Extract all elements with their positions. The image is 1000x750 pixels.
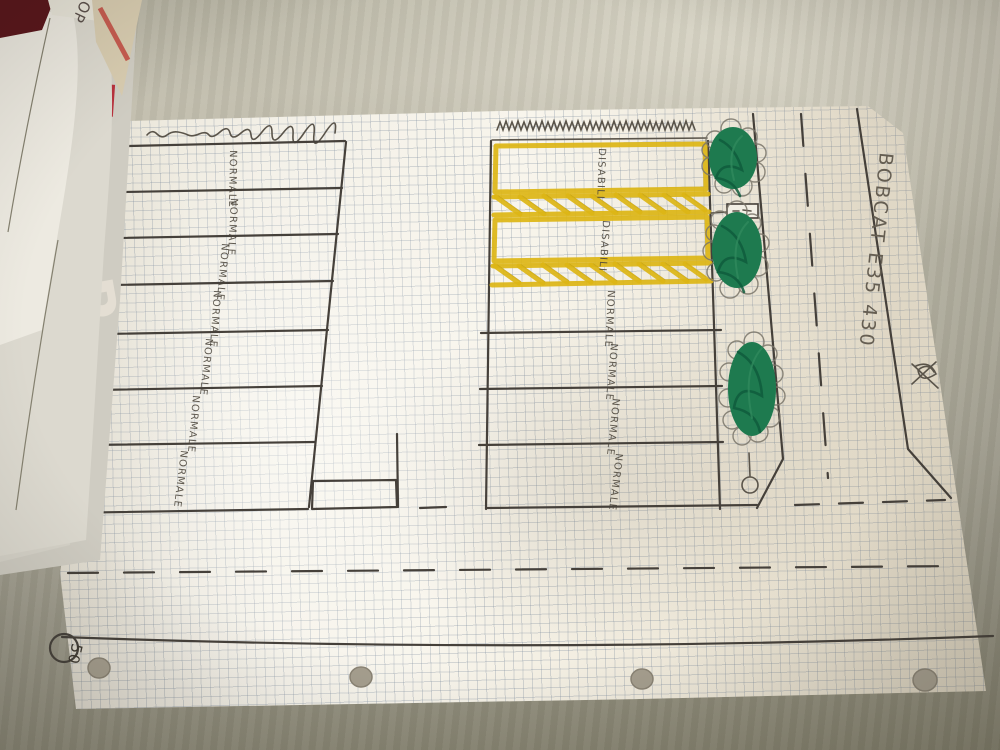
photo-of-parking-plan: NORMALE NORMALE NORMALE NORMALE NORMALE … bbox=[0, 0, 1000, 750]
bottom-road: 50 bbox=[50, 434, 993, 666]
binder-hole bbox=[913, 669, 937, 691]
binder-hole bbox=[350, 667, 372, 687]
machine-note-text: BOBCAT E35 430 bbox=[855, 151, 897, 349]
speed-limit-text: 50 bbox=[64, 642, 86, 667]
stall-label: NORMALE bbox=[602, 290, 616, 349]
tree-icon bbox=[702, 119, 766, 196]
lamp-post-icon bbox=[742, 453, 758, 493]
punched-holes bbox=[88, 658, 937, 691]
road-center-dashed-line bbox=[68, 566, 960, 573]
tree-icon bbox=[719, 332, 785, 445]
stall-label: NORMALE bbox=[606, 453, 624, 512]
torn-edge-wavy-line bbox=[147, 123, 336, 143]
right-road: BOBCAT E35 430 bbox=[801, 109, 951, 498]
binder-hole bbox=[88, 658, 110, 678]
middle-parking-block: DISABILI DISABILI NORMALE NORMALE NORMAL… bbox=[479, 121, 723, 512]
entrance-booth-outline bbox=[312, 434, 398, 509]
stall-label: NORMALE bbox=[604, 398, 621, 457]
hand-drawing-overlay: NORMALE NORMALE NORMALE NORMALE NORMALE … bbox=[0, 0, 1000, 750]
stall-label: NORMALE bbox=[171, 450, 189, 509]
signature-scribble bbox=[912, 362, 938, 388]
torn-edge-zigzag-line bbox=[497, 121, 695, 130]
paper-stack: P OP bbox=[0, 0, 142, 575]
stall-label: DISABILI bbox=[596, 220, 611, 273]
road-center-dashed-line bbox=[801, 114, 828, 478]
stall-label: NORMALE bbox=[603, 343, 619, 402]
binder-hole bbox=[631, 669, 653, 689]
stall-label: NORMALE bbox=[185, 395, 201, 454]
speed-limit-marking: 50 bbox=[50, 634, 86, 666]
stall-label: DISABILI bbox=[594, 148, 607, 200]
